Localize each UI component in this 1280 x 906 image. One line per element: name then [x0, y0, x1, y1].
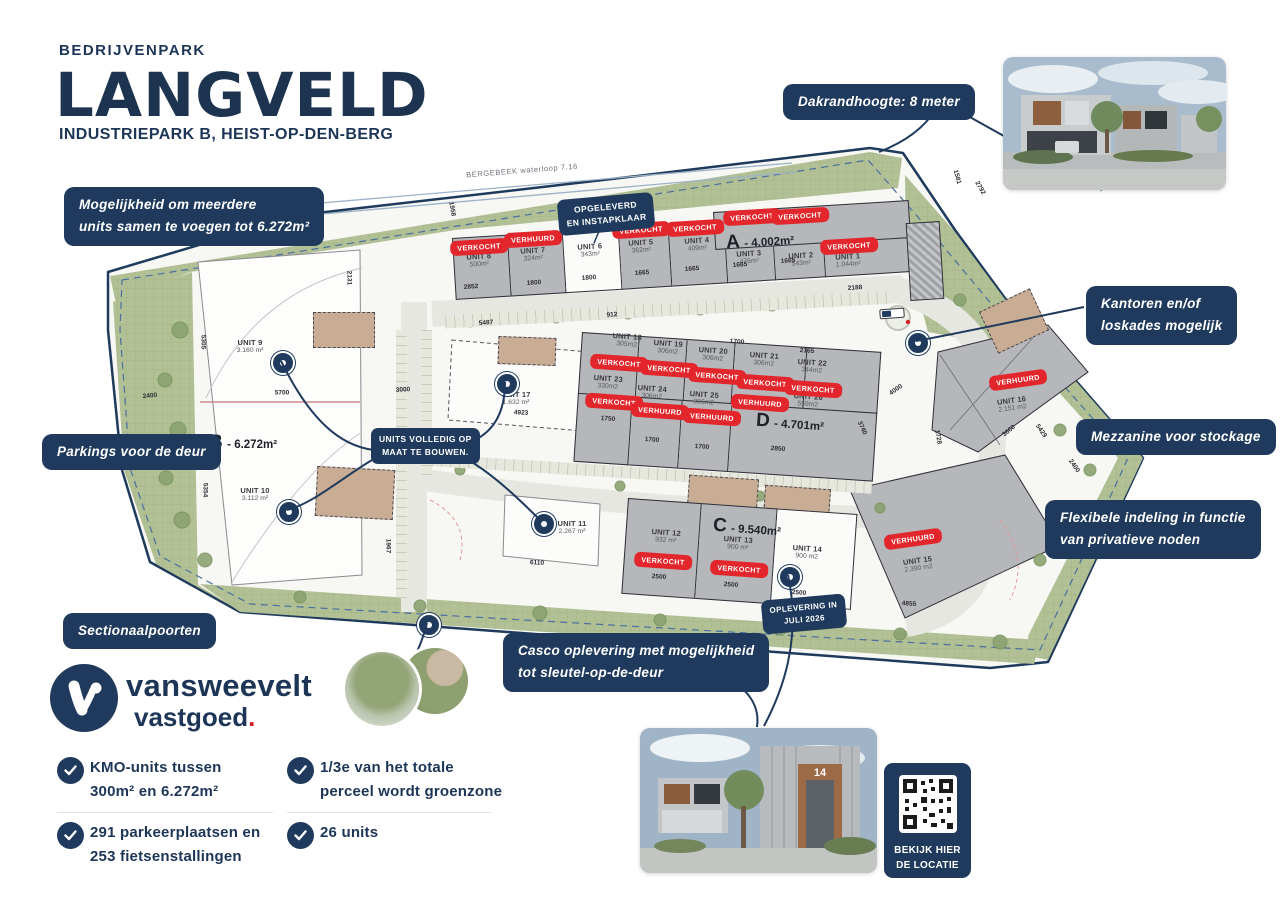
dim-label: 1967	[385, 539, 392, 553]
unit-12-label: UNIT 12932 m²	[651, 527, 681, 545]
dim-label: 4923	[514, 409, 529, 417]
dim-label: 2165	[800, 347, 815, 355]
dim-label: 5305	[200, 335, 207, 349]
dim-label: 4855	[902, 600, 917, 608]
callout-merge-line1: Mogelijkheid om meerdere	[79, 194, 309, 216]
feature-unit-count-line1: 26 units	[320, 821, 378, 845]
callout-flexible-line1: Flexibele indeling in functie	[1060, 507, 1246, 529]
marker-unit-14	[778, 565, 802, 589]
dim-label: 5700	[275, 390, 289, 397]
dim-label: 1665	[733, 261, 748, 269]
qr-label-line1: BEKIJK HIER	[884, 844, 971, 859]
unit-9-label: UNIT 93.160 m²	[237, 338, 264, 354]
feature-greenzone-line2: perceel wordt groenzone	[320, 780, 502, 804]
dim-label: 1665	[685, 265, 700, 273]
callout-flexible: Flexibele indeling in functie van privat…	[1045, 500, 1261, 559]
dim-label: 1665	[635, 269, 650, 277]
marker-greenzone	[417, 613, 441, 637]
dim-label: 2500	[652, 573, 667, 581]
dim-label: 3000	[396, 386, 411, 394]
callout-offices: Kantoren en/of loskades mogelijk	[1086, 286, 1237, 345]
brand-logo	[50, 664, 118, 737]
marker-unit-17	[495, 372, 519, 396]
marker-loading-dock	[906, 331, 930, 355]
dim-label: 1800	[582, 274, 597, 282]
feature-kmo-units: KMO-units tussen 300m² en 6.272m²	[90, 756, 222, 804]
dim-label: 1665	[781, 257, 796, 265]
dim-label: 2400	[142, 392, 157, 400]
check-icon	[287, 757, 314, 784]
office-block	[315, 466, 396, 520]
dim-label: 1700	[730, 338, 745, 346]
unit-5-label: UNIT 5362m²	[628, 237, 654, 254]
dim-label: 1750	[601, 415, 616, 423]
feature-parking-line1: 291 parkeerplaatsen en	[90, 821, 260, 845]
brand-dot: .	[248, 702, 255, 732]
parking-strip	[396, 330, 407, 598]
dim-label: 2850	[771, 445, 786, 453]
callout-casco-line1: Casco oplevering met mogelijkheid	[518, 640, 754, 662]
feature-kmo-line1: KMO-units tussen	[90, 756, 222, 780]
feature-divider	[287, 812, 491, 813]
unit-20-label: UNIT 20306m2	[698, 345, 728, 363]
block-a-label: A - 4.002m²	[725, 228, 794, 254]
callout-parking: Parkings voor de deur	[42, 434, 221, 470]
unit-7-label: UNIT 7324m²	[520, 245, 546, 262]
brand-sub: vastgoed.	[134, 702, 255, 733]
marker-unit-9	[271, 351, 295, 375]
unit-19-label: UNIT 19306m2	[653, 338, 683, 356]
callout-offices-line1: Kantoren en/of	[1101, 293, 1222, 315]
detail-photo-tree	[345, 652, 419, 726]
feature-greenzone: 1/3e van het totale perceel wordt groenz…	[320, 756, 502, 804]
callout-casco-line2: tot sleutel-op-de-deur	[518, 662, 754, 684]
dim-label: 1700	[645, 436, 660, 444]
feature-greenzone-line1: 1/3e van het totale	[320, 756, 502, 780]
callout-roof-height: Dakrandhoogte: 8 meter	[783, 84, 975, 120]
hatched-building	[906, 221, 945, 301]
callout-casco: Casco oplevering met mogelijkheid tot sl…	[503, 633, 769, 692]
unit-6-label: UNIT 6343m²	[577, 241, 603, 258]
unit-12-cell	[621, 498, 702, 599]
dim-label: 1700	[695, 443, 710, 451]
unit-22-label: UNIT 22344m2	[797, 357, 827, 375]
dim-label: 2500	[724, 581, 739, 589]
office-block	[498, 336, 557, 366]
dim-label: 2188	[848, 284, 863, 292]
office-block	[313, 312, 375, 348]
unit-11-label: UNIT 112.267 m²	[558, 519, 587, 535]
unit-23-label: UNIT 23330m2	[593, 373, 623, 391]
callout-mezzanine: Mezzanine voor stockage	[1076, 419, 1276, 455]
check-icon	[57, 757, 84, 784]
dim-label: 2852	[464, 283, 479, 291]
photo-unit-number: 14	[814, 767, 827, 779]
callout-offices-line2: loskades mogelijk	[1101, 315, 1222, 337]
dim-label: 2131	[346, 271, 353, 285]
brand-name: vansweevelt	[126, 668, 312, 704]
callout-delivery-date: OPLEVERING IN JULI 2026	[761, 593, 848, 634]
unit-18-label: UNIT 18305m2	[612, 331, 642, 349]
brand-sub-text: vastgoed	[134, 702, 248, 732]
qr-label-line2: DE LOCATIE	[884, 859, 971, 874]
block-d-label: D - 4.701m²	[755, 410, 824, 437]
block-c-label: C - 9.540m²	[712, 515, 781, 542]
unit-25-label: UNIT 25306m2	[689, 389, 719, 407]
callout-custom-line1: UNITS VOLLEDIG OP	[379, 433, 472, 446]
feature-parking-count: 291 parkeerplaatsen en 253 fietsenstalli…	[90, 821, 260, 869]
unit-14-label: UNIT 14900 m2	[792, 543, 822, 561]
feature-divider	[57, 812, 273, 813]
callout-custom-line2: MAAT TE BOUWEN.	[379, 446, 472, 459]
dim-label: 1800	[527, 279, 542, 287]
vansweevelt-logo-icon	[50, 664, 118, 732]
dim-label: 2500	[792, 589, 807, 597]
check-icon	[287, 822, 314, 849]
marker-unit-11	[532, 512, 556, 536]
unit-4-label: UNIT 4409m²	[684, 235, 710, 252]
callout-merge-units: Mogelijkheid om meerdere units samen te …	[64, 187, 324, 246]
dim-label: 5487	[479, 319, 494, 327]
location-qr-button[interactable]: BEKIJK HIER DE LOCATIE	[884, 763, 971, 878]
unit-21-label: UNIT 21306m2	[749, 350, 779, 368]
dim-label: 6110	[530, 559, 544, 566]
unit-10-label: UNIT 103.112 m²	[240, 486, 269, 502]
qr-code-icon	[899, 775, 957, 833]
callout-custom-build: UNITS VOLLEDIG OP MAAT TE BOUWEN.	[371, 428, 480, 464]
dim-label: 912	[606, 311, 617, 319]
unit-6-cell	[563, 228, 623, 293]
render-photo-unit14: 14	[640, 728, 877, 873]
check-icon	[57, 822, 84, 849]
marker-unit-10	[277, 500, 301, 524]
render-photo-street	[1003, 57, 1226, 190]
feature-unit-count: 26 units	[320, 821, 378, 845]
callout-sectional-doors: Sectionaalpoorten	[63, 613, 216, 649]
feature-parking-line2: 253 fietsenstallingen	[90, 845, 260, 869]
dim-label: 5354	[202, 483, 209, 497]
callout-merge-line2: units samen te voegen tot 6.272m²	[79, 216, 309, 238]
feature-kmo-line2: 300m² en 6.272m²	[90, 780, 222, 804]
callout-flexible-line2: van privatieve noden	[1060, 529, 1246, 551]
